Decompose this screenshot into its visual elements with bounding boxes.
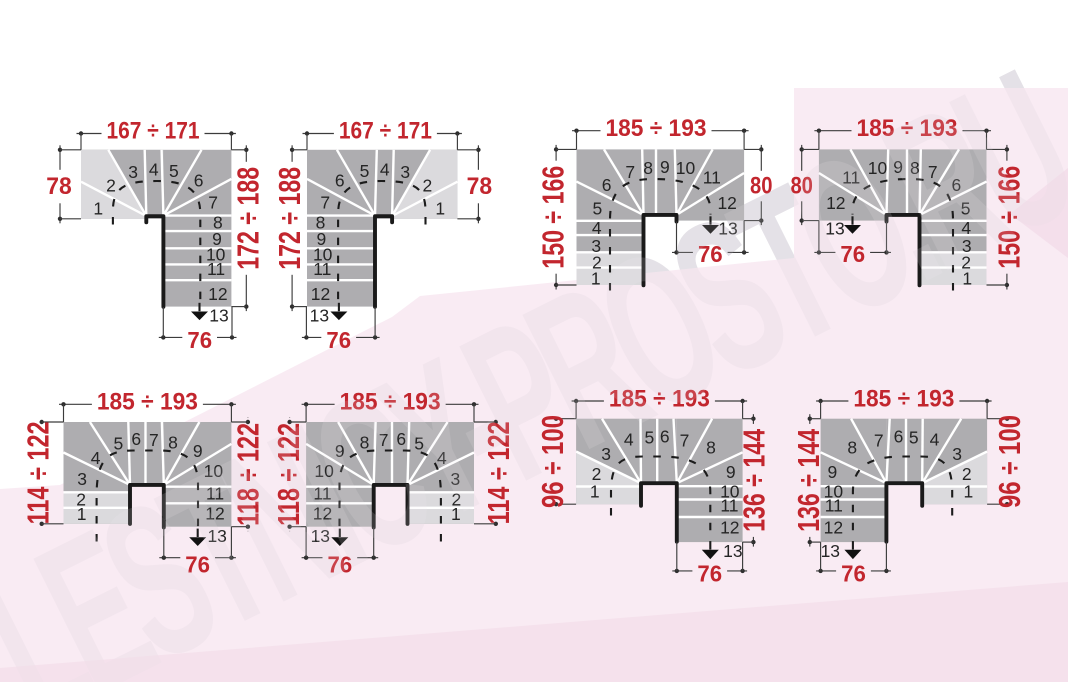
svg-text:10: 10 xyxy=(676,158,696,178)
svg-text:13: 13 xyxy=(723,541,742,561)
svg-text:13: 13 xyxy=(310,305,329,325)
svg-text:78: 78 xyxy=(467,173,493,200)
svg-text:4: 4 xyxy=(91,448,101,468)
svg-text:7: 7 xyxy=(208,193,218,213)
svg-text:172 ÷ 188: 172 ÷ 188 xyxy=(232,167,266,270)
svg-text:1: 1 xyxy=(93,199,103,219)
svg-text:12: 12 xyxy=(311,284,330,304)
svg-text:11: 11 xyxy=(720,496,738,516)
svg-text:3: 3 xyxy=(128,162,138,182)
svg-text:13: 13 xyxy=(209,305,228,325)
svg-text:5: 5 xyxy=(114,434,124,454)
svg-text:136 ÷ 144: 136 ÷ 144 xyxy=(737,429,771,532)
svg-text:1: 1 xyxy=(435,199,445,219)
svg-text:7: 7 xyxy=(625,162,635,182)
svg-text:5: 5 xyxy=(169,161,179,181)
svg-text:7: 7 xyxy=(320,193,330,213)
svg-text:6: 6 xyxy=(131,429,141,449)
svg-text:167 ÷ 171: 167 ÷ 171 xyxy=(107,117,200,144)
svg-text:5: 5 xyxy=(909,427,919,447)
svg-text:11: 11 xyxy=(313,259,331,279)
svg-text:96 ÷ 100: 96 ÷ 100 xyxy=(993,415,1027,508)
svg-text:172 ÷ 188: 172 ÷ 188 xyxy=(273,167,307,270)
svg-text:2: 2 xyxy=(962,464,972,484)
svg-text:3: 3 xyxy=(400,162,410,182)
svg-text:6: 6 xyxy=(335,171,345,191)
svg-text:9: 9 xyxy=(828,462,838,482)
svg-text:76: 76 xyxy=(326,327,351,353)
svg-text:76: 76 xyxy=(187,327,212,353)
svg-text:13: 13 xyxy=(821,541,840,561)
svg-text:4: 4 xyxy=(149,160,159,180)
svg-text:9: 9 xyxy=(660,157,670,177)
svg-text:7: 7 xyxy=(874,431,884,451)
svg-text:8: 8 xyxy=(643,158,653,178)
svg-text:2: 2 xyxy=(423,175,433,195)
svg-text:136 ÷ 144: 136 ÷ 144 xyxy=(792,429,826,532)
svg-text:1: 1 xyxy=(964,481,974,501)
svg-text:76: 76 xyxy=(841,561,866,587)
svg-text:4: 4 xyxy=(930,430,940,450)
svg-text:5: 5 xyxy=(593,198,603,218)
svg-text:12: 12 xyxy=(824,517,843,537)
svg-text:11: 11 xyxy=(207,259,225,279)
svg-text:6: 6 xyxy=(194,171,204,191)
svg-text:167 ÷ 171: 167 ÷ 171 xyxy=(339,117,432,144)
svg-text:2: 2 xyxy=(106,175,116,195)
svg-text:185 ÷ 193: 185 ÷ 193 xyxy=(97,389,198,416)
svg-text:4: 4 xyxy=(380,160,390,180)
svg-text:6: 6 xyxy=(602,175,612,195)
svg-text:5: 5 xyxy=(360,161,370,181)
svg-text:3: 3 xyxy=(952,444,962,464)
svg-text:76: 76 xyxy=(697,561,722,587)
svg-text:11: 11 xyxy=(825,496,843,516)
svg-text:8: 8 xyxy=(847,438,857,458)
svg-text:6: 6 xyxy=(894,427,904,447)
svg-text:185 ÷ 193: 185 ÷ 193 xyxy=(853,385,954,412)
svg-text:9: 9 xyxy=(726,462,736,482)
svg-text:78: 78 xyxy=(46,173,72,200)
svg-text:185 ÷ 193: 185 ÷ 193 xyxy=(606,115,707,142)
svg-text:12: 12 xyxy=(208,284,227,304)
